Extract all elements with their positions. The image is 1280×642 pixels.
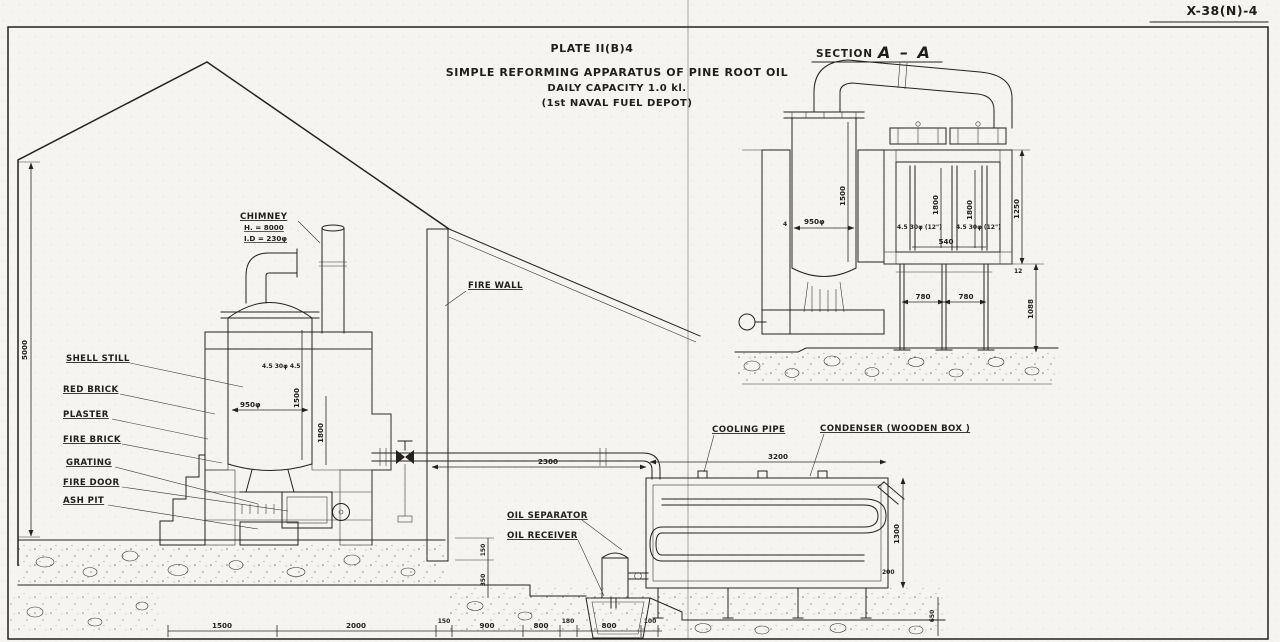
plate-label: PLATE II(B)4: [550, 42, 633, 55]
section-ground: [735, 348, 1058, 384]
dim-still-height: 1500: [292, 388, 301, 408]
dim-780-left: 780: [915, 292, 930, 301]
tube-note-right: 4.5 30φ (12"): [956, 224, 1001, 231]
dim-pit-step: 150: [480, 544, 487, 557]
dim-pit-depth: 350: [480, 574, 487, 587]
plaster-label: PLASTER: [63, 410, 109, 420]
dim-780-right: 780: [958, 292, 973, 301]
dim-bottom-900: 900: [479, 621, 494, 630]
dim-bottom-100: 100: [644, 618, 657, 625]
engineering-drawing: X-38(N)-4 PLATE II(B)4 SIMPLE REFORMING …: [0, 0, 1280, 642]
ash-pit-label: ASH PIT: [63, 496, 104, 506]
drawing-sheet: X-38(N)-4 PLATE II(B)4 SIMPLE REFORMING …: [0, 0, 1280, 642]
fire-door-label: FIRE DOOR: [63, 478, 120, 488]
dim-bottom-800b: 800: [601, 621, 616, 630]
dim-5000-text: 5000: [20, 340, 29, 360]
dim-wall-4: 4: [783, 221, 787, 228]
drawing-title: SIMPLE REFORMING APPARATUS OF PINE ROOT …: [446, 66, 788, 79]
ground-right: [448, 585, 945, 634]
shell-still-label: SHELL STILL: [66, 354, 130, 364]
tube-note-left: 4.5 30φ (12"): [897, 224, 942, 231]
dim-bottom-1500: 1500: [212, 621, 232, 630]
dim-still-dia: 950φ: [240, 400, 261, 409]
red-brick-label: RED BRICK: [63, 385, 119, 395]
chimney-label: CHIMNEY: [240, 212, 288, 222]
dim-12: 12: [1014, 268, 1022, 275]
dim-200: 200: [882, 569, 895, 576]
section-name: A – A: [876, 43, 932, 62]
dim-1250: 1250: [1012, 199, 1021, 219]
dim-1088: 1088: [1026, 299, 1035, 319]
drawing-subtitle: DAILY CAPACITY 1.0 kl.: [547, 83, 686, 94]
cooling-pipe-label: COOLING PIPE: [712, 425, 785, 435]
dim-bottom-180: 180: [562, 618, 575, 625]
dim-section-still-dia: 950φ: [804, 217, 825, 226]
oil-receiver-label: OIL RECEIVER: [507, 531, 578, 541]
dim-tube-height-left: 1800: [931, 195, 940, 215]
dim-540: 540: [938, 237, 953, 246]
doc-number: X-38(N)-4: [1187, 3, 1258, 18]
dim-shell-note: 4.5 30φ 4.5: [262, 363, 300, 370]
oil-separator-label: OIL SEPARATOR: [507, 511, 588, 521]
section-title: SECTION: [816, 48, 873, 60]
fire-brick-label: FIRE BRICK: [63, 435, 121, 445]
dim-1300: 1300: [892, 524, 901, 544]
dim-tube-height-right: 1800: [965, 200, 974, 220]
dim-bottom-2000: 2000: [346, 621, 366, 630]
dim-bottom-800a: 800: [533, 621, 548, 630]
grating-label: GRATING: [66, 458, 112, 468]
dim-section-still-height: 1500: [838, 186, 847, 206]
dim-firebox-height: 1800: [316, 423, 325, 443]
dim-bottom-150: 150: [438, 618, 451, 625]
fire-wall-label: FIRE WALL: [468, 281, 523, 291]
dim-2300: 2300: [538, 457, 558, 466]
chimney-id-note: I.D = 230φ: [244, 234, 287, 243]
condenser-label: CONDENSER (WOODEN BOX ): [820, 424, 970, 434]
drawing-issuer: (1st NAVAL FUEL DEPOT): [542, 98, 693, 109]
dim-3200: 3200: [768, 452, 788, 461]
chimney-height-note: H. = 8000: [244, 223, 284, 232]
